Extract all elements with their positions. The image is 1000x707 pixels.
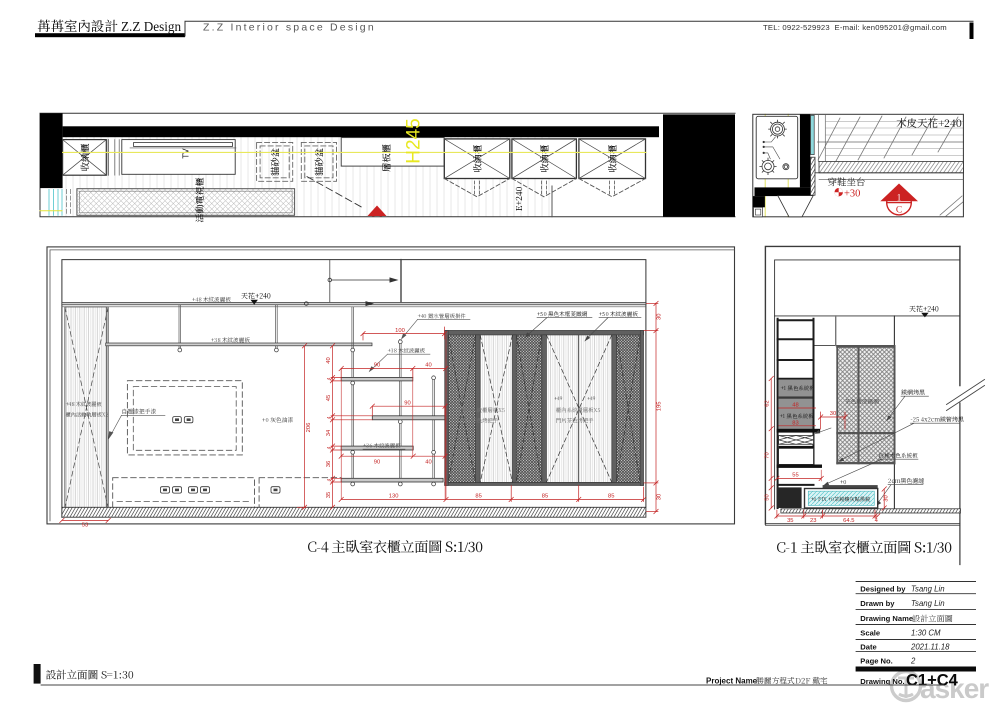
svg-text:4: 4: [326, 446, 331, 449]
svg-text:85: 85: [475, 494, 481, 500]
svg-text:E+240: E+240: [513, 186, 525, 211]
svg-text:門片茶色烤把手: 門片茶色烤把手: [460, 417, 498, 425]
svg-text:+0 FIX +0茶鏡鑲灰貼黑鏡: +0 FIX +0茶鏡鑲灰貼黑鏡: [811, 496, 871, 503]
svg-text:1: 1: [897, 193, 902, 203]
svg-text:206: 206: [306, 423, 312, 433]
svg-text:苒苒室內設計: 苒苒室內設計: [37, 15, 118, 35]
svg-text:櫃內系統櫃層板X5: 櫃內系統櫃層板X5: [556, 406, 601, 414]
svg-text:門片茶色烤把手: 門片茶色烤把手: [556, 417, 594, 425]
svg-text:+48 木紋波麗板: +48 木紋波麗板: [192, 296, 231, 304]
svg-text:設計立面圖 S=1:30: 設計立面圖 S=1:30: [46, 668, 134, 683]
svg-text:50: 50: [765, 494, 771, 500]
svg-text:+38 木紋波麗板: +38 木紋波麗板: [211, 336, 250, 344]
svg-text:85: 85: [608, 494, 614, 500]
svg-text:4: 4: [326, 377, 331, 380]
svg-text:+40 鐵水管層板掛件: +40 鐵水管層板掛件: [418, 312, 467, 320]
svg-text:+1 黑色系統板: +1 黑色系統板: [781, 384, 816, 392]
svg-text:白橡木色系統板: 白橡木色系統板: [879, 452, 919, 460]
svg-text:Scale: Scale: [860, 629, 880, 638]
svg-text:自體漆把手漆: 自體漆把手漆: [122, 407, 157, 416]
svg-text:Project Name: Project Name: [706, 677, 758, 686]
svg-text:2cm黑色濾縫: 2cm黑色濾縫: [888, 476, 924, 485]
svg-text:30: 30: [830, 411, 836, 417]
svg-text:2021.11.18: 2021.11.18: [910, 643, 950, 652]
svg-text:40: 40: [326, 357, 332, 363]
svg-text:C: C: [896, 206, 902, 216]
svg-text:64.5: 64.5: [843, 518, 854, 524]
svg-text:層板櫃: 層板櫃: [379, 144, 393, 172]
svg-text:木皮天花+240: 木皮天花+240: [896, 116, 962, 131]
svg-text:TEL: 0922-529923 E-mail: ken0: TEL: 0922-529923 E-mail: ken095201@gmail…: [763, 23, 947, 32]
svg-text:23: 23: [810, 518, 816, 524]
svg-text:90: 90: [374, 363, 380, 369]
svg-text:櫃內系統櫃層板X5: 櫃內系統櫃層板X5: [460, 406, 505, 414]
svg-text:收納櫃: 收納櫃: [470, 145, 484, 173]
svg-text:茶色烤漆鐵網: 茶色烤漆鐵網: [845, 398, 879, 406]
svg-text:40: 40: [425, 460, 431, 466]
svg-text:Date: Date: [860, 643, 876, 652]
svg-text:收納櫃: 收納櫃: [78, 143, 92, 171]
svg-text:+50 黑色木框菱鐵網: +50 黑色木框菱鐵網: [537, 310, 588, 318]
svg-text:貓砂盆: 貓砂盆: [312, 147, 326, 176]
svg-text:195: 195: [657, 402, 663, 412]
svg-text:C-1 主臥室衣櫃立面圖 S:1/30: C-1 主臥室衣櫃立面圖 S:1/30: [776, 538, 952, 558]
svg-text:穿鞋坐台: 穿鞋坐台: [828, 175, 866, 189]
svg-text:130: 130: [389, 494, 399, 500]
svg-text:Tsang Lin: Tsang Lin: [911, 599, 945, 608]
svg-text:30: 30: [884, 495, 890, 501]
svg-text:設計立面圖: 設計立面圖: [912, 614, 954, 625]
svg-text:62: 62: [765, 400, 771, 406]
svg-text:2: 2: [910, 657, 916, 666]
svg-text:Drawn by: Drawn by: [860, 599, 895, 608]
svg-text:48: 48: [792, 403, 798, 409]
svg-text:收納櫃: 收納櫃: [537, 145, 551, 173]
svg-text:+36 木紋波麗板: +36 木紋波麗板: [363, 442, 401, 450]
svg-text:貓砂盆: 貓砂盆: [268, 147, 282, 176]
svg-text:70: 70: [765, 452, 771, 458]
svg-text:4: 4: [326, 416, 331, 419]
svg-text:Z.Z Design: Z.Z Design: [121, 19, 181, 34]
svg-text:-25 4x2cm鐵管烤黑: -25 4x2cm鐵管烤黑: [911, 415, 964, 424]
svg-text:30: 30: [657, 314, 663, 320]
svg-text:櫃內活動軌層板X2: 櫃內活動軌層板X2: [66, 412, 109, 419]
svg-text:Z.Z Interior space Design: Z.Z Interior space Design: [203, 22, 376, 34]
svg-text:45: 45: [326, 395, 332, 401]
svg-text:+1 黑色系統板: +1 黑色系統板: [780, 412, 815, 420]
svg-text:1:30 CM: 1:30 CM: [911, 629, 941, 638]
svg-text:+48 木紋波麗板: +48 木紋波麗板: [66, 401, 103, 408]
svg-text:+49: +49: [554, 395, 563, 402]
svg-text:90: 90: [404, 400, 410, 406]
svg-text:Drawing Name: Drawing Name: [860, 614, 913, 623]
svg-text:Tsang Lin: Tsang Lin: [911, 585, 945, 594]
svg-text:34: 34: [326, 429, 332, 436]
svg-text:35: 35: [787, 518, 793, 524]
svg-text:H245: H245: [404, 118, 425, 163]
svg-text:+0: +0: [840, 478, 846, 486]
svg-text:收納櫃: 收納櫃: [605, 145, 619, 173]
svg-text:+50 木紋波麗板: +50 木紋波麗板: [599, 310, 638, 318]
svg-text:+30: +30: [844, 189, 860, 200]
svg-text:53: 53: [82, 523, 88, 529]
svg-text:36: 36: [326, 461, 332, 467]
svg-text:Page No.: Page No.: [860, 657, 893, 666]
svg-text:Designed by: Designed by: [860, 585, 906, 594]
svg-text:活動電視櫃: 活動電視櫃: [193, 177, 206, 222]
svg-text:鐵網烤黑: 鐵網烤黑: [901, 388, 925, 397]
svg-text:90: 90: [374, 460, 380, 466]
svg-text:55: 55: [792, 472, 798, 478]
svg-text:+0 灰色油漆: +0 灰色油漆: [262, 415, 293, 424]
svg-text:30: 30: [657, 494, 663, 500]
svg-text:85: 85: [542, 494, 548, 500]
svg-text:C-4 主臥室衣櫃立面圖 S:1/30: C-4 主臥室衣櫃立面圖 S:1/30: [307, 537, 483, 557]
svg-text:35: 35: [326, 492, 332, 498]
svg-text:4: 4: [326, 478, 331, 481]
svg-text:40: 40: [425, 363, 431, 369]
svg-text:C1+C4: C1+C4: [906, 672, 959, 690]
svg-text:+38 木紋波麗板: +38 木紋波麗板: [388, 347, 426, 355]
svg-text:TV: TV: [182, 148, 191, 159]
svg-text:+49: +49: [587, 395, 596, 402]
svg-text:100: 100: [395, 328, 405, 334]
